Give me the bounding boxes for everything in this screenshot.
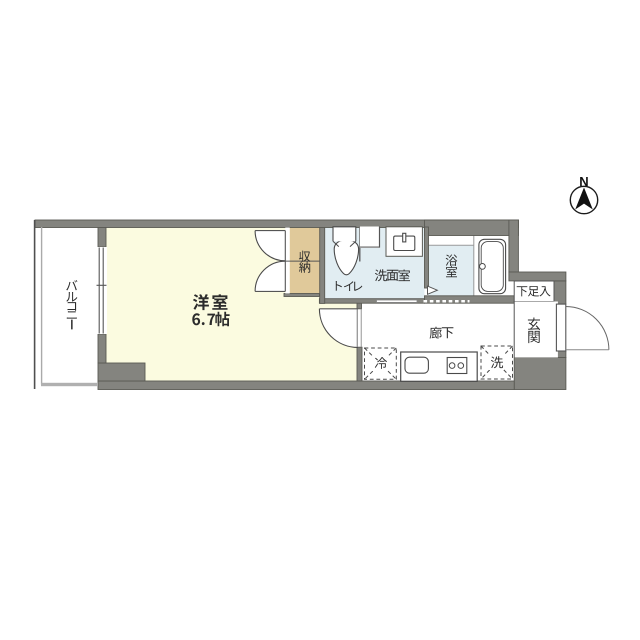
svg-text:N: N xyxy=(579,174,588,189)
